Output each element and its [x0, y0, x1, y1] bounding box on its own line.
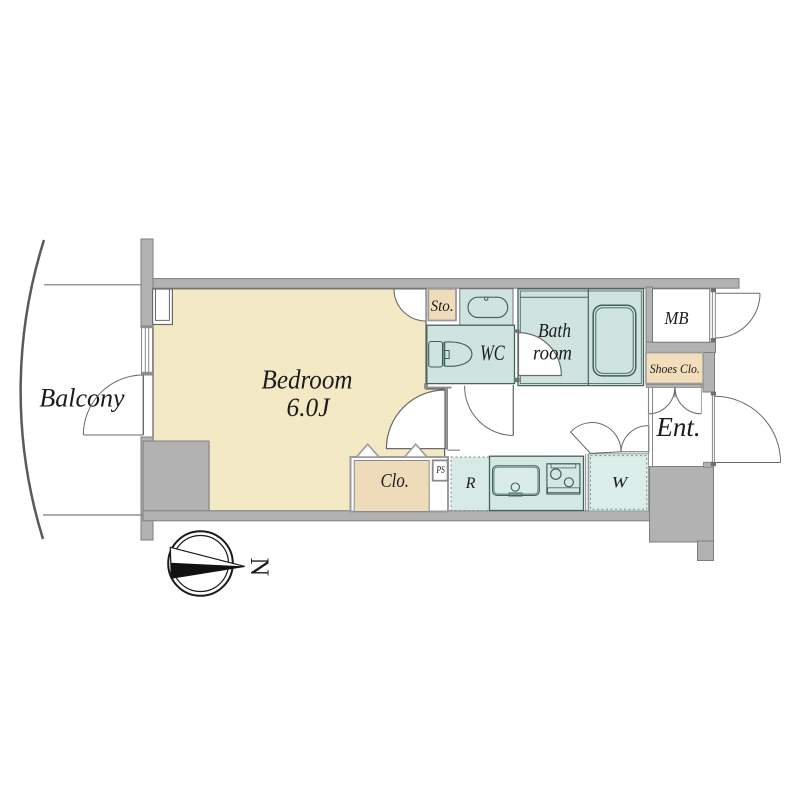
svg-text:R: R: [465, 475, 476, 492]
svg-text:Shoes Clo.: Shoes Clo.: [650, 361, 700, 376]
svg-text:Balcony: Balcony: [39, 384, 125, 413]
svg-text:Clo.: Clo.: [380, 470, 409, 492]
svg-text:PS: PS: [436, 465, 445, 476]
svg-text:WC: WC: [480, 340, 505, 365]
svg-text:W: W: [612, 474, 629, 491]
svg-text:N: N: [245, 558, 274, 577]
svg-text:Bedroom: Bedroom: [262, 365, 353, 395]
svg-text:6.0J: 6.0J: [287, 393, 331, 422]
svg-text:Sto.: Sto.: [431, 298, 454, 315]
svg-text:MB: MB: [664, 308, 689, 328]
svg-text:Bath: Bath: [538, 320, 571, 342]
svg-text:Ent.: Ent.: [655, 412, 700, 442]
svg-text:room: room: [533, 343, 572, 365]
